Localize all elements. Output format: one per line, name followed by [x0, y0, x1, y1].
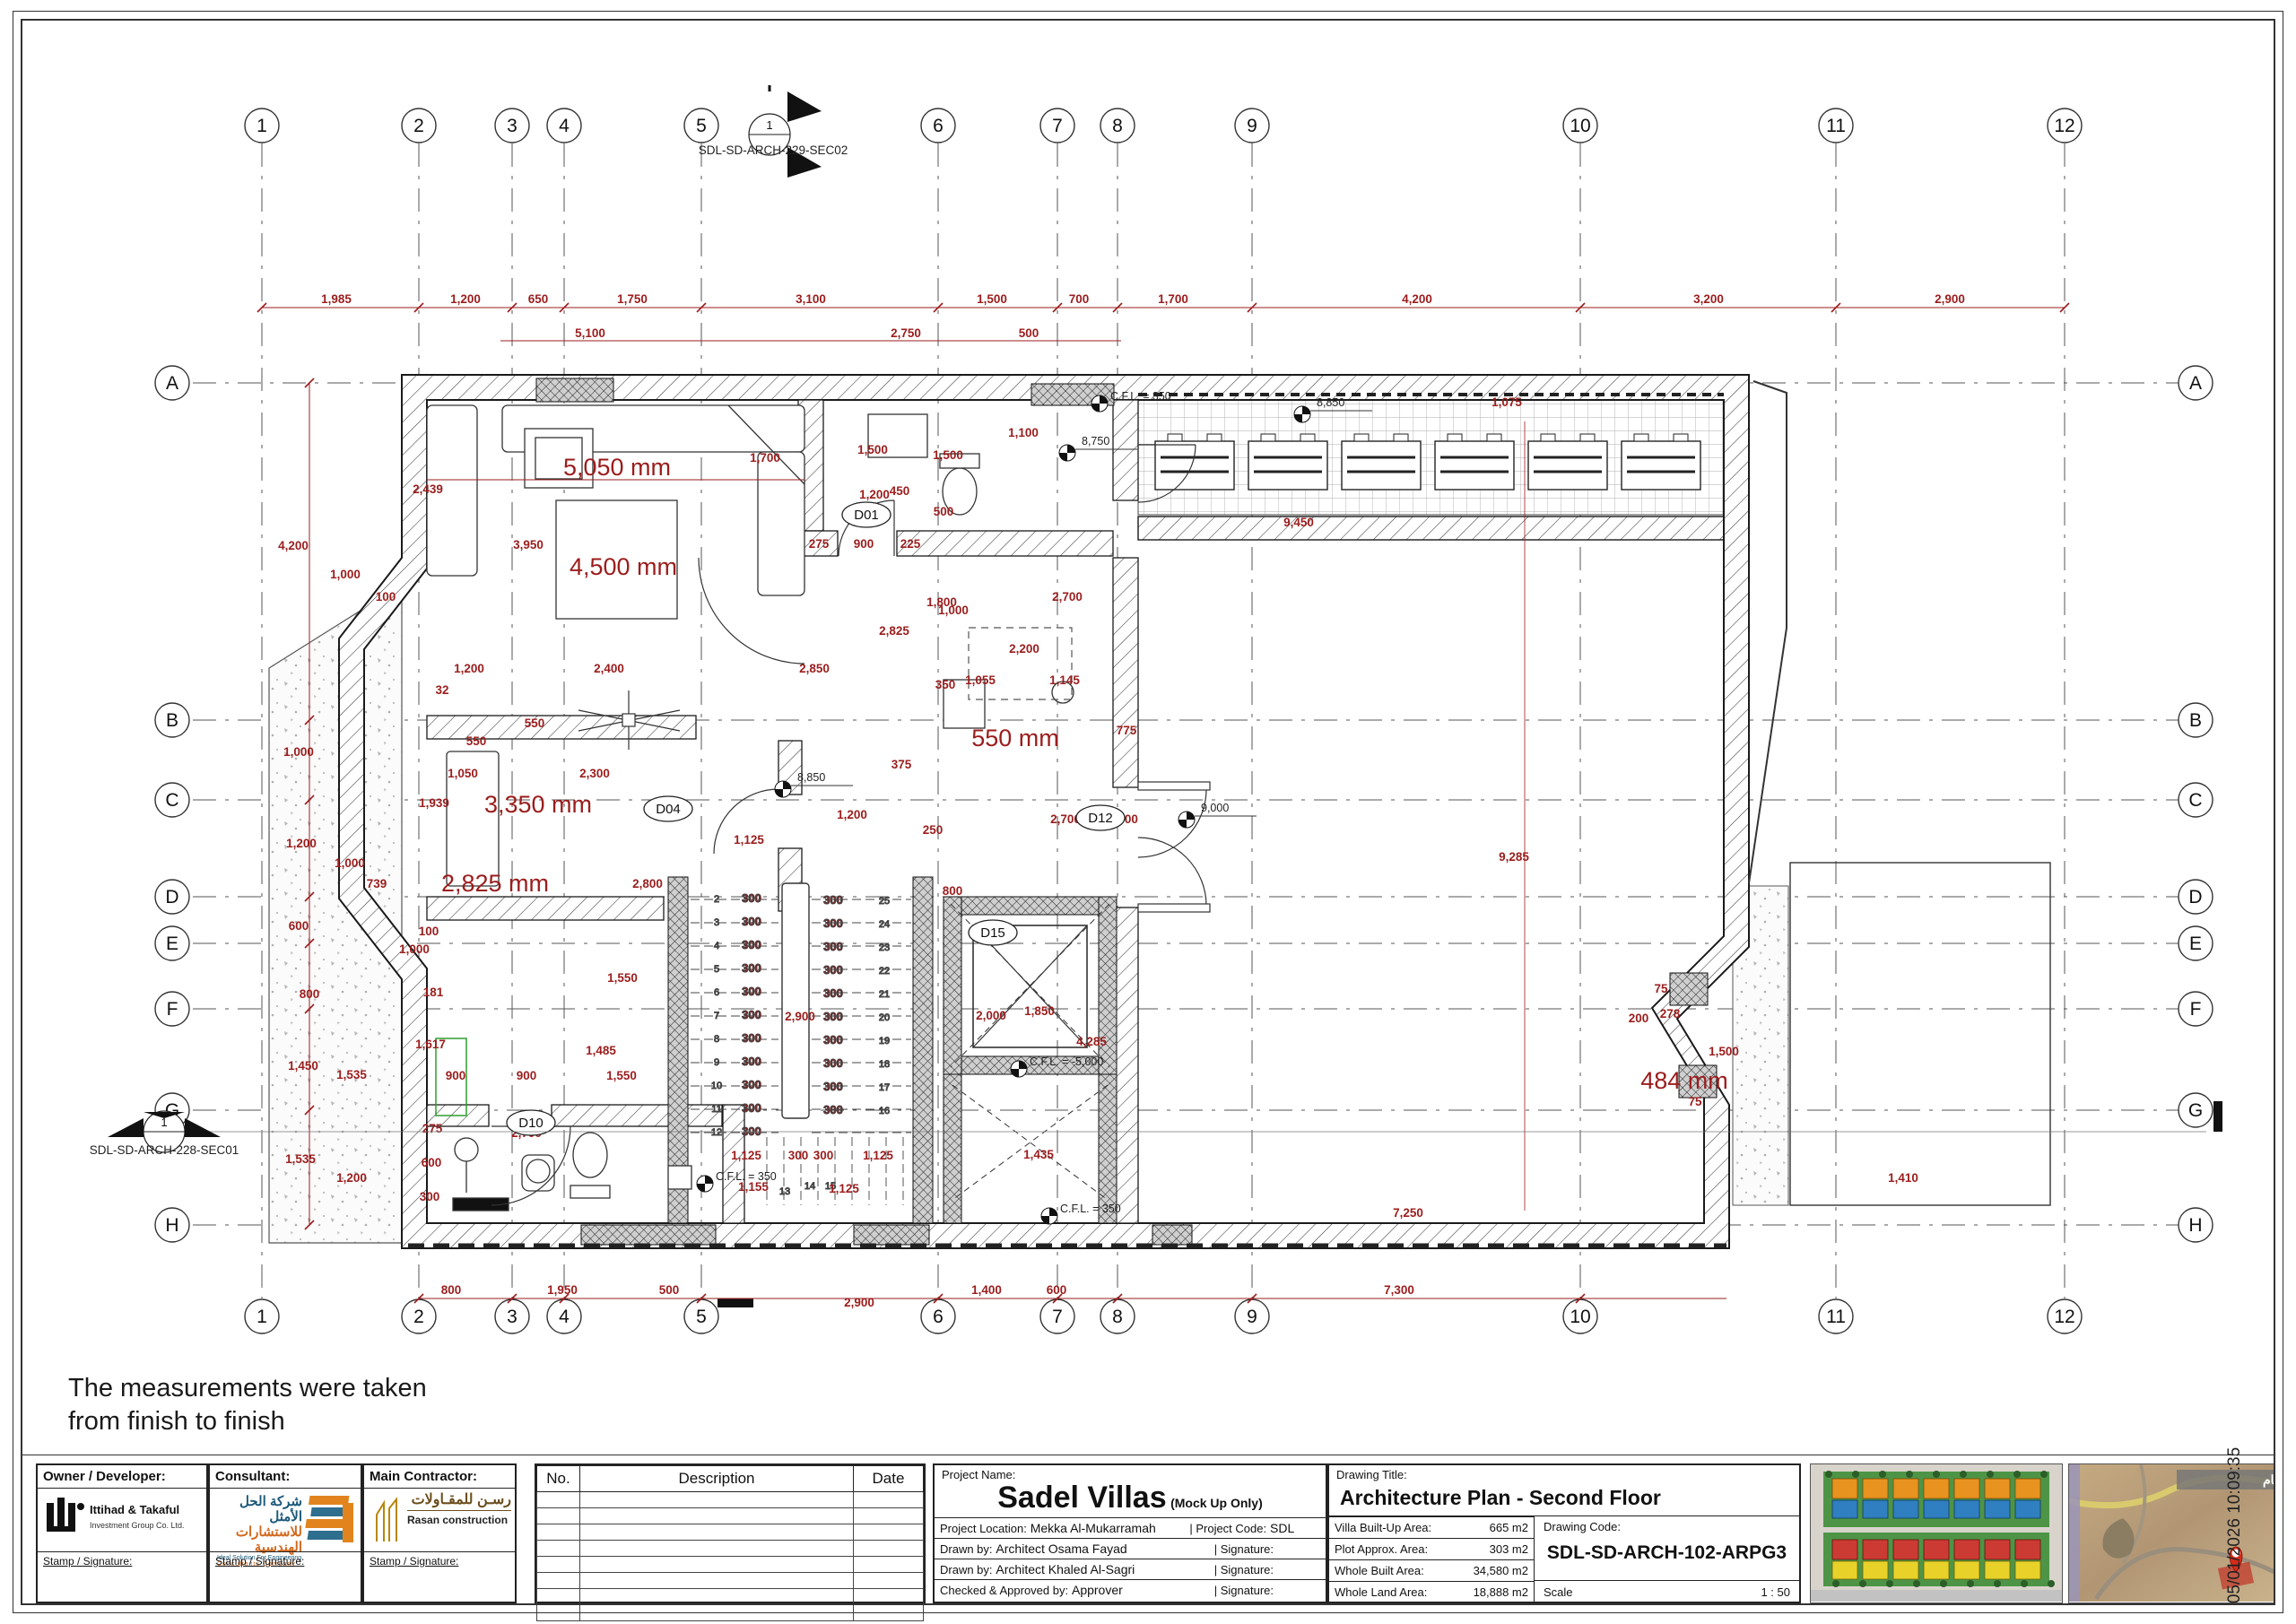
sheet-inner-frame: [21, 19, 2275, 1605]
drawing-sheet: 112233445566778899101011111212AABBCCDDEE…: [0, 0, 2296, 1624]
